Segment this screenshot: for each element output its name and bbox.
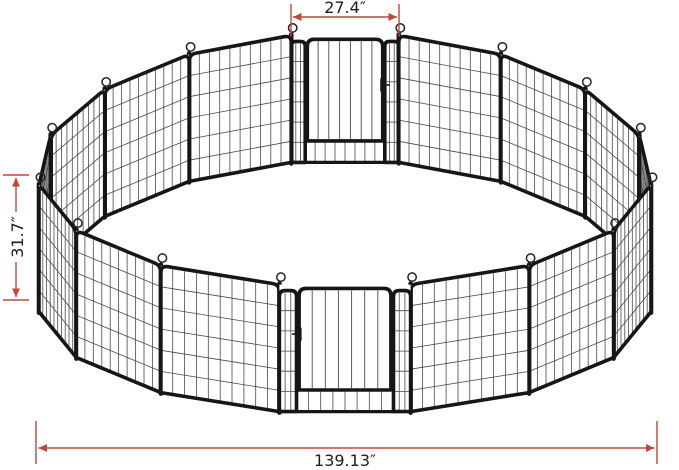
anchor-hook-icon <box>408 273 416 281</box>
anchor-hook-icon <box>583 78 591 86</box>
panel-face <box>299 288 391 390</box>
anchor-hook-icon <box>396 24 404 32</box>
dimension-overall-width: 139.13″ <box>36 421 657 470</box>
pen-panel <box>411 266 529 412</box>
pen-panel <box>501 54 585 216</box>
anchor-hook-icon <box>637 124 645 132</box>
pen-panel <box>399 35 501 181</box>
anchor-hook-icon <box>277 273 285 281</box>
overall-width-value: 139.13″ <box>314 451 376 470</box>
anchor-hook-icon <box>498 43 506 51</box>
anchor-hook-icon <box>289 24 297 32</box>
anchor-hook-icon <box>48 124 56 132</box>
pen-panel <box>189 35 291 181</box>
top-gate-width-value: 27.4″ <box>324 0 366 17</box>
anchor-hook-icon <box>526 254 534 262</box>
playpen-dimension-diagram: 27.4″ 31.7″ 139.13″ <box>0 0 679 470</box>
pen-panel <box>105 54 189 216</box>
playpen-drawing <box>36 24 656 413</box>
pen-panel <box>161 266 280 412</box>
anchor-hook-icon <box>102 78 110 86</box>
anchor-hook-icon <box>158 254 166 262</box>
diagram-canvas: 27.4″ 31.7″ 139.13″ <box>0 0 679 470</box>
anchor-hook-icon <box>186 43 194 51</box>
dimension-panel-height: 31.7″ <box>3 175 29 300</box>
pen-panel <box>529 231 614 393</box>
pen-gate-panel <box>279 285 410 412</box>
pen-panel <box>76 231 160 393</box>
panel-face <box>307 39 382 141</box>
panel-height-value: 31.7″ <box>8 216 27 258</box>
dimension-top-gate-width: 27.4″ <box>291 0 399 36</box>
pen-gate-panel <box>291 35 399 162</box>
